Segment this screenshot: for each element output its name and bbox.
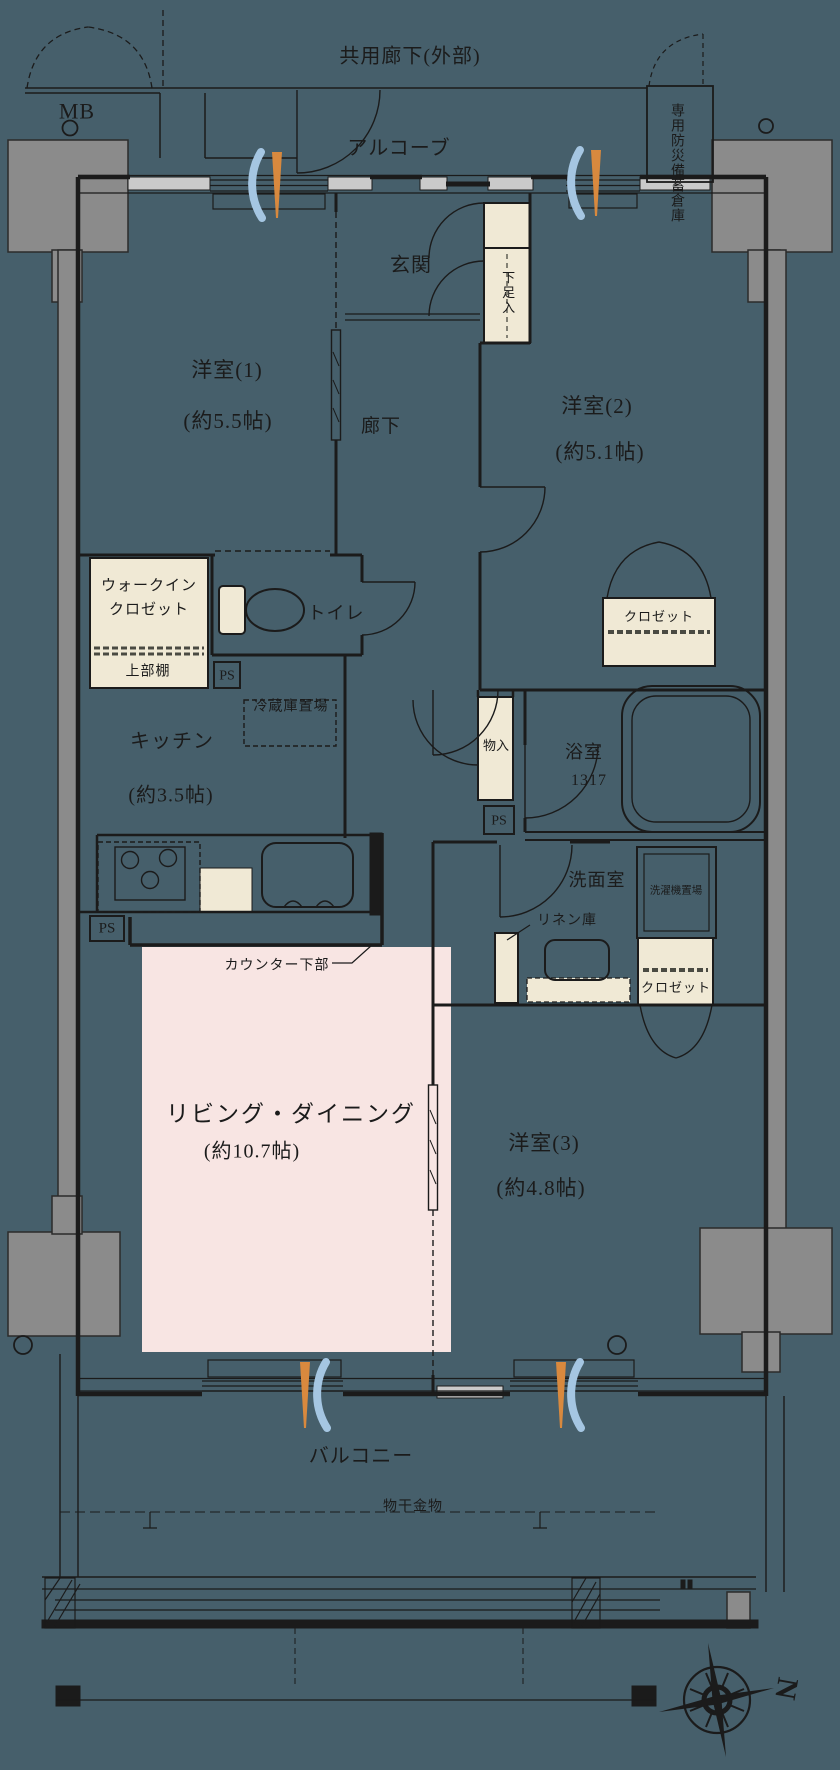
label-fridge: 冷蔵庫置場	[254, 698, 329, 716]
label-bath: 浴室	[565, 741, 603, 764]
kitchen-counter-insert	[200, 868, 252, 912]
label-ps-1: PS	[219, 667, 235, 685]
airflow-blue-icon	[317, 1362, 327, 1428]
label-shoe-cabinet: 下足入	[499, 271, 515, 316]
floor-plan: 共用廊下(外部) MB アルコーブ 専用防災備蓄倉庫 玄関 下足入 洋室(1) …	[0, 0, 840, 1770]
burner-icon	[142, 872, 159, 889]
label-room3: 洋室(3)	[508, 1130, 580, 1156]
compass-icon	[659, 1643, 774, 1757]
wall-right	[766, 250, 786, 1230]
label-common-corridor: 共用廊下(外部)	[339, 45, 480, 70]
label-bath-size: 1317	[571, 771, 607, 791]
closet-room2-doors	[607, 542, 711, 598]
mono-door	[413, 700, 478, 765]
airflow-orange-icon	[300, 1362, 310, 1428]
toilet-door	[362, 582, 415, 635]
label-living-dining: リビング・ダイニング	[166, 1101, 416, 1130]
label-mb: MB	[59, 97, 95, 125]
linen-cabinet	[495, 933, 518, 1003]
label-room1: 洋室(1)	[191, 357, 263, 383]
label-walk-in-closet: ウォークイン クロゼット	[101, 574, 197, 622]
label-disaster-storage: 専用防災備蓄倉庫	[663, 103, 689, 165]
label-closet-room2: クロゼット	[624, 609, 694, 625]
shoe-cabinet-doors	[429, 203, 484, 316]
washroom-door	[500, 845, 572, 917]
label-mono: 物入	[483, 738, 509, 754]
label-laundry: 洗濯機置場	[650, 884, 703, 897]
airflow-blue-icon	[571, 150, 581, 216]
label-room3-size: (約4.8帖)	[496, 1175, 585, 1201]
label-room2-size: (約5.1帖)	[555, 439, 644, 465]
pillar-top-right	[712, 140, 832, 252]
label-closet-room3: クロゼット	[641, 980, 711, 996]
label-kitchen-size: (約3.5帖)	[128, 784, 213, 809]
bathtub	[622, 686, 760, 832]
label-upper-shelf: 上部棚	[126, 663, 171, 681]
label-linen: リネン庫	[537, 912, 597, 930]
airflow-orange-icon	[556, 1362, 566, 1428]
label-balcony: バルコニー	[309, 1445, 414, 1470]
kitchen-sink	[262, 843, 353, 907]
laundry-hook-icon	[143, 1512, 547, 1528]
label-living-dining-size: (約10.7帖)	[204, 1140, 300, 1165]
label-laundry-hardware: 物干金物	[383, 1498, 443, 1516]
pillar-top-left	[8, 140, 128, 252]
label-room2: 洋室(2)	[561, 393, 633, 419]
label-genkan: 玄関	[390, 254, 432, 279]
balcony-structure	[42, 1354, 784, 1706]
wall-left	[58, 250, 78, 1198]
toilet-bowl-icon	[246, 589, 304, 631]
label-ps-3: PS	[491, 812, 507, 830]
storage-door-dashed	[649, 34, 703, 86]
label-kitchen: キッチン	[130, 730, 214, 755]
mb-doors	[27, 10, 163, 88]
wash-basin	[545, 940, 609, 980]
label-washroom: 洗面室	[569, 869, 626, 892]
label-toilet: トイレ	[308, 602, 365, 625]
vanity-counter	[527, 978, 630, 1002]
toilet-tank	[219, 586, 245, 634]
pillar-bottom-left	[8, 1232, 120, 1336]
label-hall: 廊下	[361, 415, 401, 439]
label-ps-2: PS	[99, 920, 116, 939]
label-alcove: アルコーブ	[347, 137, 450, 162]
label-room1-size: (約5.5帖)	[183, 408, 272, 434]
airflow-orange-icon	[591, 150, 601, 216]
burner-icon	[122, 852, 139, 869]
room2-door	[480, 487, 545, 552]
stove	[115, 847, 185, 900]
closet-room3-doors	[640, 1005, 712, 1058]
airflow-blue-icon	[571, 1362, 581, 1428]
burner-icon	[160, 850, 177, 867]
label-counter-lower: カウンター下部	[225, 957, 330, 975]
